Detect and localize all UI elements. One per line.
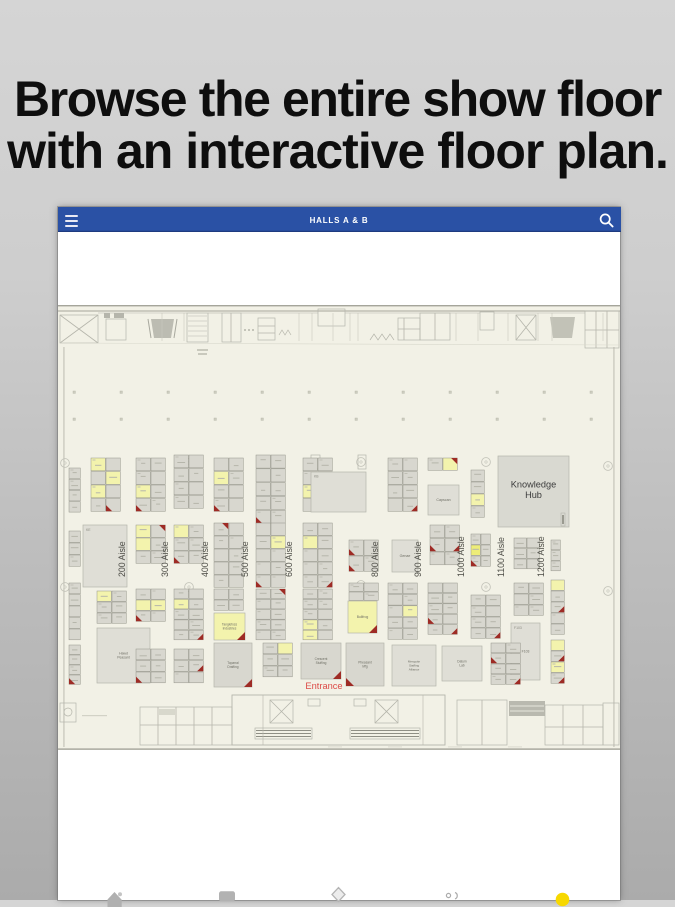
- svg-text:KE: KE: [86, 528, 91, 532]
- svg-text:F103: F103: [521, 650, 529, 654]
- svg-text:Drafting: Drafting: [227, 665, 238, 669]
- svg-text:Hub: Hub: [525, 490, 542, 500]
- svg-text:400 Aisle: 400 Aisle: [200, 541, 210, 577]
- svg-text:800 Aisle: 800 Aisle: [370, 541, 380, 577]
- svg-text:500 Aisle: 500 Aisle: [240, 541, 250, 577]
- svg-text:Stuffing: Stuffing: [315, 661, 326, 665]
- svg-text:1000 Aisle: 1000 Aisle: [456, 536, 466, 577]
- svg-text:Peasant: Peasant: [117, 656, 129, 660]
- svg-text:Capscan: Capscan: [436, 498, 450, 502]
- svg-text:1200 Aisle: 1200 Aisle: [536, 536, 546, 577]
- svg-text:300 Aisle: 300 Aisle: [160, 541, 170, 577]
- svg-text:Knowledge: Knowledge: [510, 479, 555, 489]
- svg-text:900 Aisle: 900 Aisle: [413, 541, 423, 577]
- svg-text:Entrance: Entrance: [305, 681, 342, 691]
- svg-text:Lab: Lab: [459, 664, 465, 668]
- svg-text:KB: KB: [314, 475, 319, 479]
- svg-text:Bullfrog: Bullfrog: [356, 615, 368, 619]
- svg-text:200 Aisle: 200 Aisle: [117, 541, 127, 577]
- svg-text:Alliance: Alliance: [408, 668, 419, 672]
- svg-text:Industries: Industries: [222, 627, 236, 631]
- svg-text:Mfg: Mfg: [362, 665, 368, 669]
- svg-text:Genae: Genae: [399, 554, 410, 558]
- svg-text:600 Aisle: 600 Aisle: [284, 541, 294, 577]
- svg-text:F103: F103: [514, 626, 522, 630]
- svg-text:1100 Aisle: 1100 Aisle: [496, 537, 506, 577]
